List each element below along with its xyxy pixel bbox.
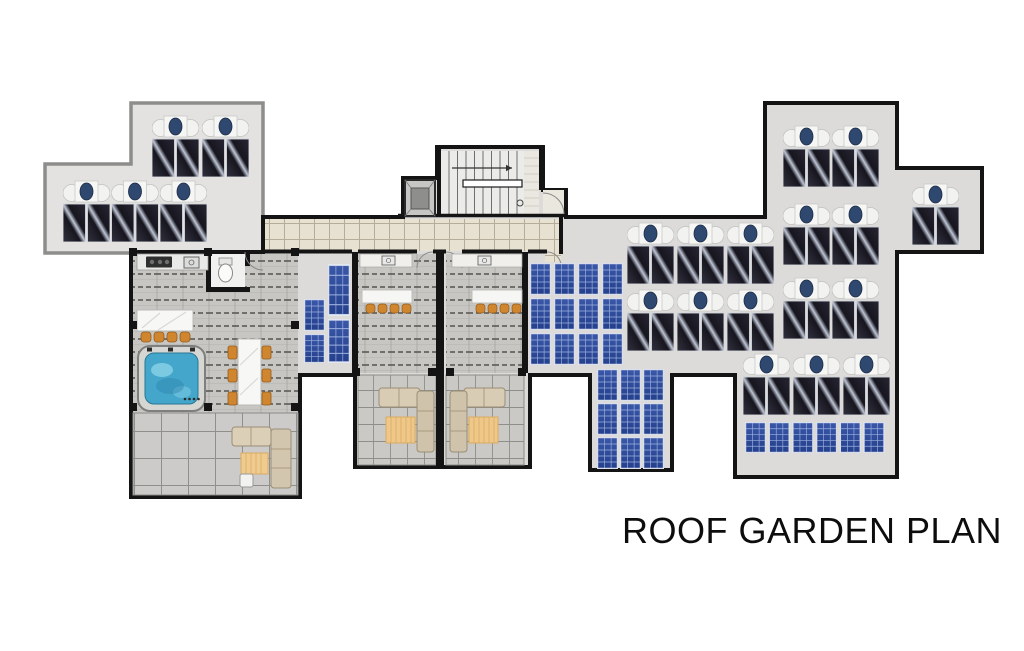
stair-handrail — [463, 180, 522, 187]
deck-dining-table — [228, 339, 271, 405]
pv-array-lower-center — [597, 369, 664, 469]
unit-b-pergola-floor — [446, 254, 524, 373]
column-marker — [129, 248, 137, 256]
unit-b-sofa-group — [450, 388, 505, 452]
elevator — [405, 180, 435, 216]
column-marker — [129, 321, 137, 329]
column-marker — [518, 368, 526, 376]
pv-panel — [328, 319, 350, 363]
pv-panel — [530, 298, 551, 330]
pv-panel — [840, 422, 861, 453]
corridor-floor — [265, 219, 561, 251]
pv-panel — [620, 437, 641, 469]
pv-panel — [304, 299, 325, 331]
pv-panel — [643, 403, 664, 435]
pv-panel — [769, 422, 790, 453]
column-marker — [129, 403, 137, 411]
column-marker — [291, 321, 299, 329]
unit-b-kitchenette — [452, 254, 522, 267]
stair-landing — [524, 151, 539, 214]
pv-panel — [597, 437, 618, 469]
pv-panel — [643, 437, 664, 469]
pv-panel — [602, 263, 623, 295]
pv-panel — [602, 333, 623, 365]
sink — [184, 257, 199, 268]
deck-rug — [241, 453, 268, 474]
wc-room — [211, 254, 245, 287]
pv-panel — [597, 369, 618, 401]
roof-garden-plan-drawing — [0, 0, 1024, 651]
corridor-floor-end — [545, 251, 561, 262]
hot-tub — [138, 346, 205, 411]
pv-panel — [530, 263, 551, 295]
unit-a-sofa-group — [379, 388, 434, 452]
unit-a-pergola-floor — [358, 254, 436, 373]
unit-b-bar — [472, 290, 522, 313]
pv-panel — [745, 422, 766, 453]
column-marker — [204, 248, 212, 256]
pv-panel — [554, 333, 575, 365]
pv-panel — [554, 298, 575, 330]
pv-panel — [578, 298, 599, 330]
pv-panel — [816, 422, 837, 453]
column-marker — [428, 368, 436, 376]
column-marker — [352, 368, 360, 376]
column-marker — [446, 368, 454, 376]
roof-garden-plan-page: ROOF GARDEN PLAN — [0, 0, 1024, 651]
pv-panel — [578, 263, 599, 295]
deck-kitchenette — [137, 254, 208, 270]
column-marker — [204, 403, 212, 411]
pv-panel — [864, 422, 885, 453]
pv-panel — [643, 369, 664, 401]
column-marker — [291, 403, 299, 411]
pv-panel — [620, 403, 641, 435]
unit-a-bar — [362, 290, 412, 313]
pv-panel — [304, 334, 325, 363]
side-table — [240, 474, 253, 487]
pv-panel — [554, 263, 575, 295]
unit-a-kitchenette — [360, 254, 412, 267]
pv-panel — [530, 333, 551, 365]
plan-title: ROOF GARDEN PLAN — [622, 510, 982, 552]
pv-panel — [597, 403, 618, 435]
pv-panel — [620, 369, 641, 401]
pv-panel — [328, 264, 350, 316]
pv-panel — [792, 422, 813, 453]
pv-panel — [602, 298, 623, 330]
pv-panel — [578, 333, 599, 365]
column-marker — [291, 248, 299, 256]
